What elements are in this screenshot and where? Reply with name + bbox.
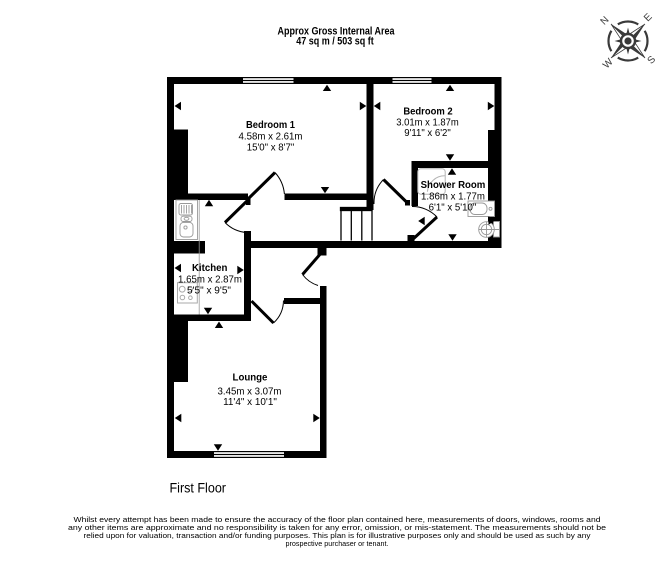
svg-text:prospective purchaser or tenan: prospective purchaser or tenant. [286, 539, 389, 548]
svg-text:Shower Room: Shower Room [421, 179, 486, 191]
svg-text:9'11" x 6'2": 9'11" x 6'2" [404, 127, 451, 139]
svg-text:6'1" x 5'10": 6'1" x 5'10" [429, 201, 477, 213]
svg-text:Kitchen: Kitchen [192, 262, 228, 274]
svg-text:1.65m x 2.87m: 1.65m x 2.87m [178, 274, 242, 286]
svg-text:First Floor: First Floor [170, 481, 227, 496]
svg-text:11'4" x 10'1": 11'4" x 10'1" [223, 396, 277, 408]
svg-text:5'5" x 9'5": 5'5" x 9'5" [187, 285, 231, 297]
svg-text:Bedroom 1: Bedroom 1 [246, 119, 295, 131]
svg-text:Lounge: Lounge [233, 372, 268, 384]
svg-text:47 sq m / 503 sq ft: 47 sq m / 503 sq ft [296, 36, 374, 48]
svg-text:15'0" x 8'7": 15'0" x 8'7" [247, 142, 295, 154]
